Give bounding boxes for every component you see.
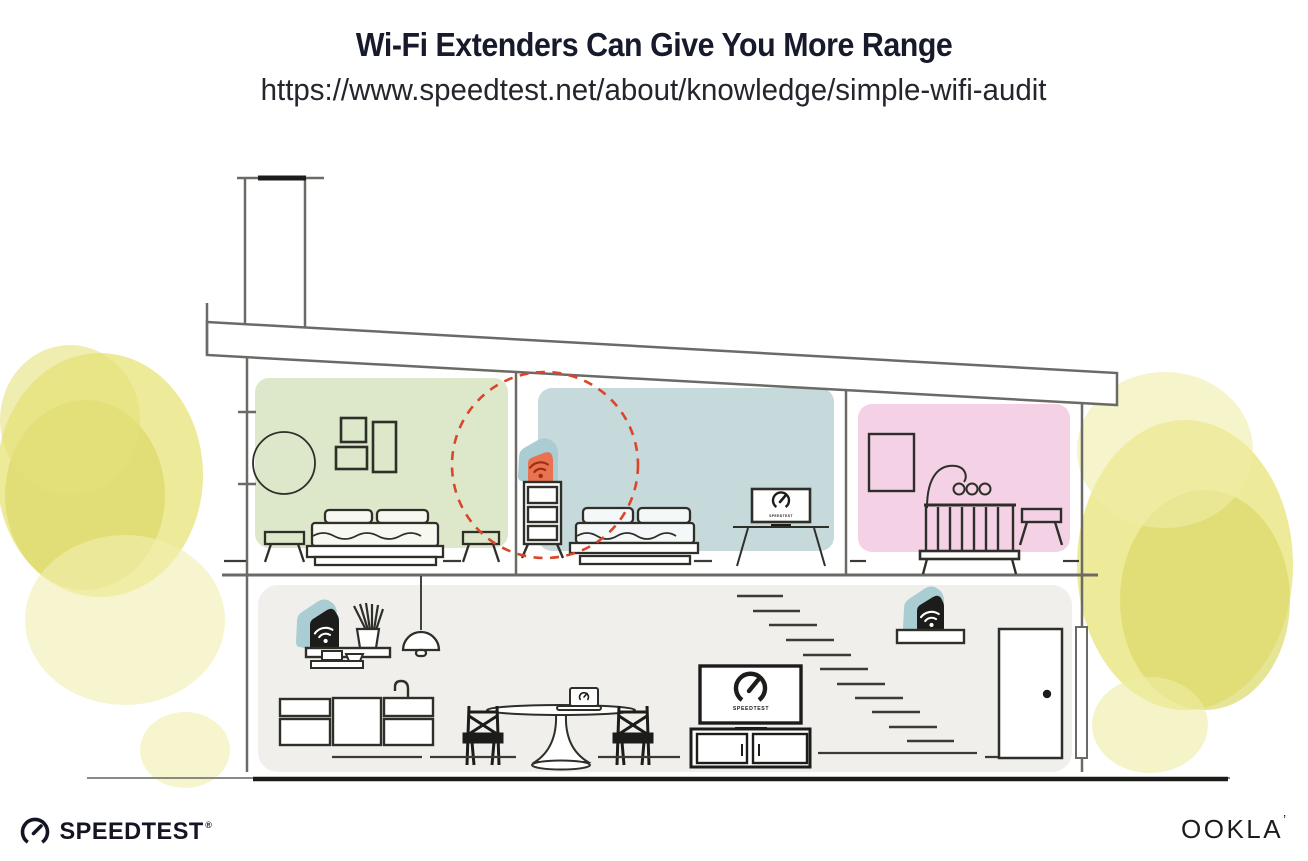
house-illustration: SPEEDTEST [0,0,1308,861]
foliage-right [1077,372,1293,773]
tv-screen-label: SPEEDTEST [769,514,793,518]
registered-mark: ® [205,820,212,830]
speedtest-logo: SPEEDTEST® [20,817,212,847]
ookla-logo: OOKLA’ [1181,814,1286,845]
wall-shelf [897,630,964,643]
door-knob [1043,690,1051,698]
speedtest-gauge-icon [20,817,50,847]
extender-dresser-group [518,438,563,558]
speedtest-wordmark: SPEEDTEST [59,818,203,846]
media-console [691,729,810,767]
infographic-page: Wi-Fi Extenders Can Give You More Range … [0,0,1308,861]
front-door [999,629,1062,758]
tv-screen-label: SPEEDTEST [733,706,769,712]
ookla-mark: ’ [1283,812,1286,827]
nursery-pink-background [858,404,1070,552]
bed-blue [570,508,698,564]
living-room-tv: SPEEDTEST [700,666,801,731]
foliage-left [0,345,230,788]
downpipe [1076,627,1087,758]
ookla-wordmark: OOKLA [1181,814,1283,844]
